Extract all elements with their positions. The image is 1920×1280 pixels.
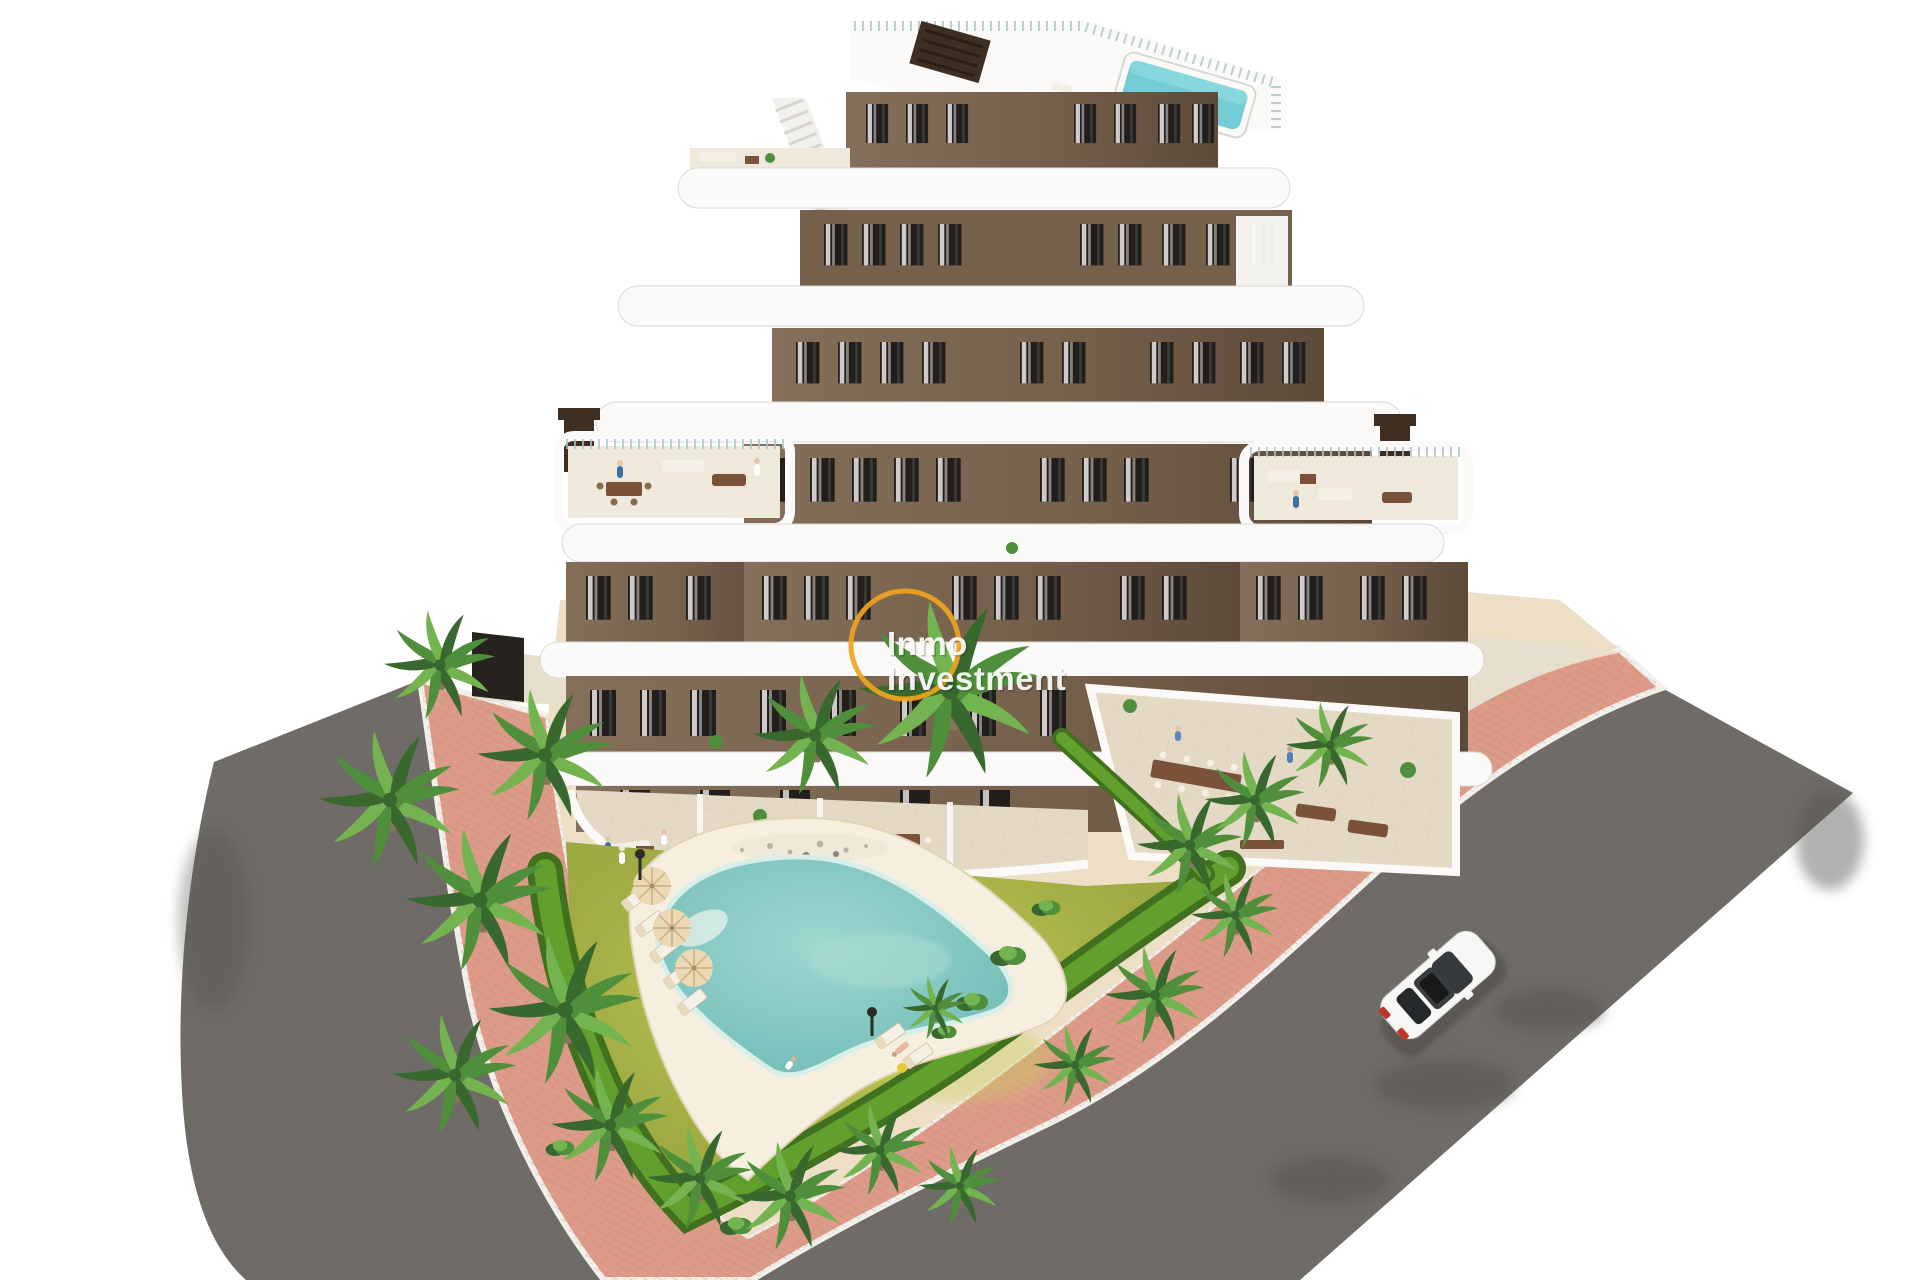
parasol [675,949,713,987]
person [1293,490,1299,508]
balcony-band-7 [678,168,1290,208]
property-render: Inmo Inmo Investment Investment [0,0,1920,1280]
person [619,845,625,864]
beach-ball [897,1063,907,1073]
render-canvas: Inmo Inmo Investment Investment [0,0,1920,1280]
terrace-deck [568,446,780,518]
person [661,829,667,845]
balcony-plant [1006,542,1018,554]
water-highlight [810,932,950,988]
person [1175,725,1181,741]
person [1287,746,1293,763]
floor4-windows [768,458,1339,502]
watermark-line1: Inmo [887,625,968,662]
person [754,458,760,476]
chimney-cap [1374,414,1416,426]
balcony-plant [709,735,723,749]
watermark-line2: Investment [887,660,1066,697]
balcony-band-4 [562,524,1444,562]
palm-shadow-on-road [178,830,250,1010]
balcony-band-6 [618,286,1364,326]
parasol [653,909,691,947]
terrace-deck [1254,456,1458,520]
floor6-balcony [1236,216,1288,286]
person [617,460,623,478]
chimney-cap [558,408,600,420]
